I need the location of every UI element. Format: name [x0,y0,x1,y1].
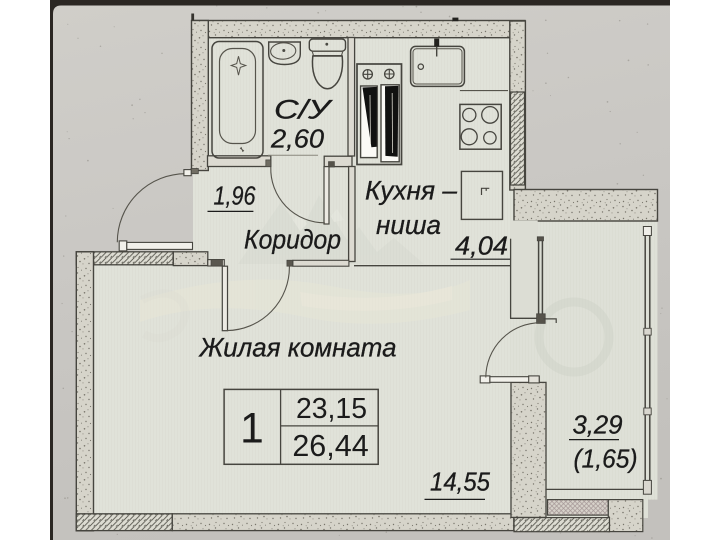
svg-text:Кухня –: Кухня – [365,176,458,206]
svg-text:Жилая комната: Жилая комната [198,333,397,363]
svg-text:ниша: ниша [376,210,441,240]
svg-text:Коридор: Коридор [244,225,341,255]
svg-text:26,44: 26,44 [292,429,368,463]
svg-text:1,96: 1,96 [214,181,256,211]
svg-text:2,60: 2,60 [270,124,325,154]
svg-text:С/У: С/У [274,95,333,125]
svg-text:(1,65): (1,65) [574,444,638,474]
svg-text:14,55: 14,55 [430,467,490,497]
svg-text:1: 1 [240,406,264,453]
svg-text:4,04: 4,04 [455,231,508,261]
svg-text:3,29: 3,29 [573,410,623,440]
svg-text:23,15: 23,15 [296,393,367,425]
